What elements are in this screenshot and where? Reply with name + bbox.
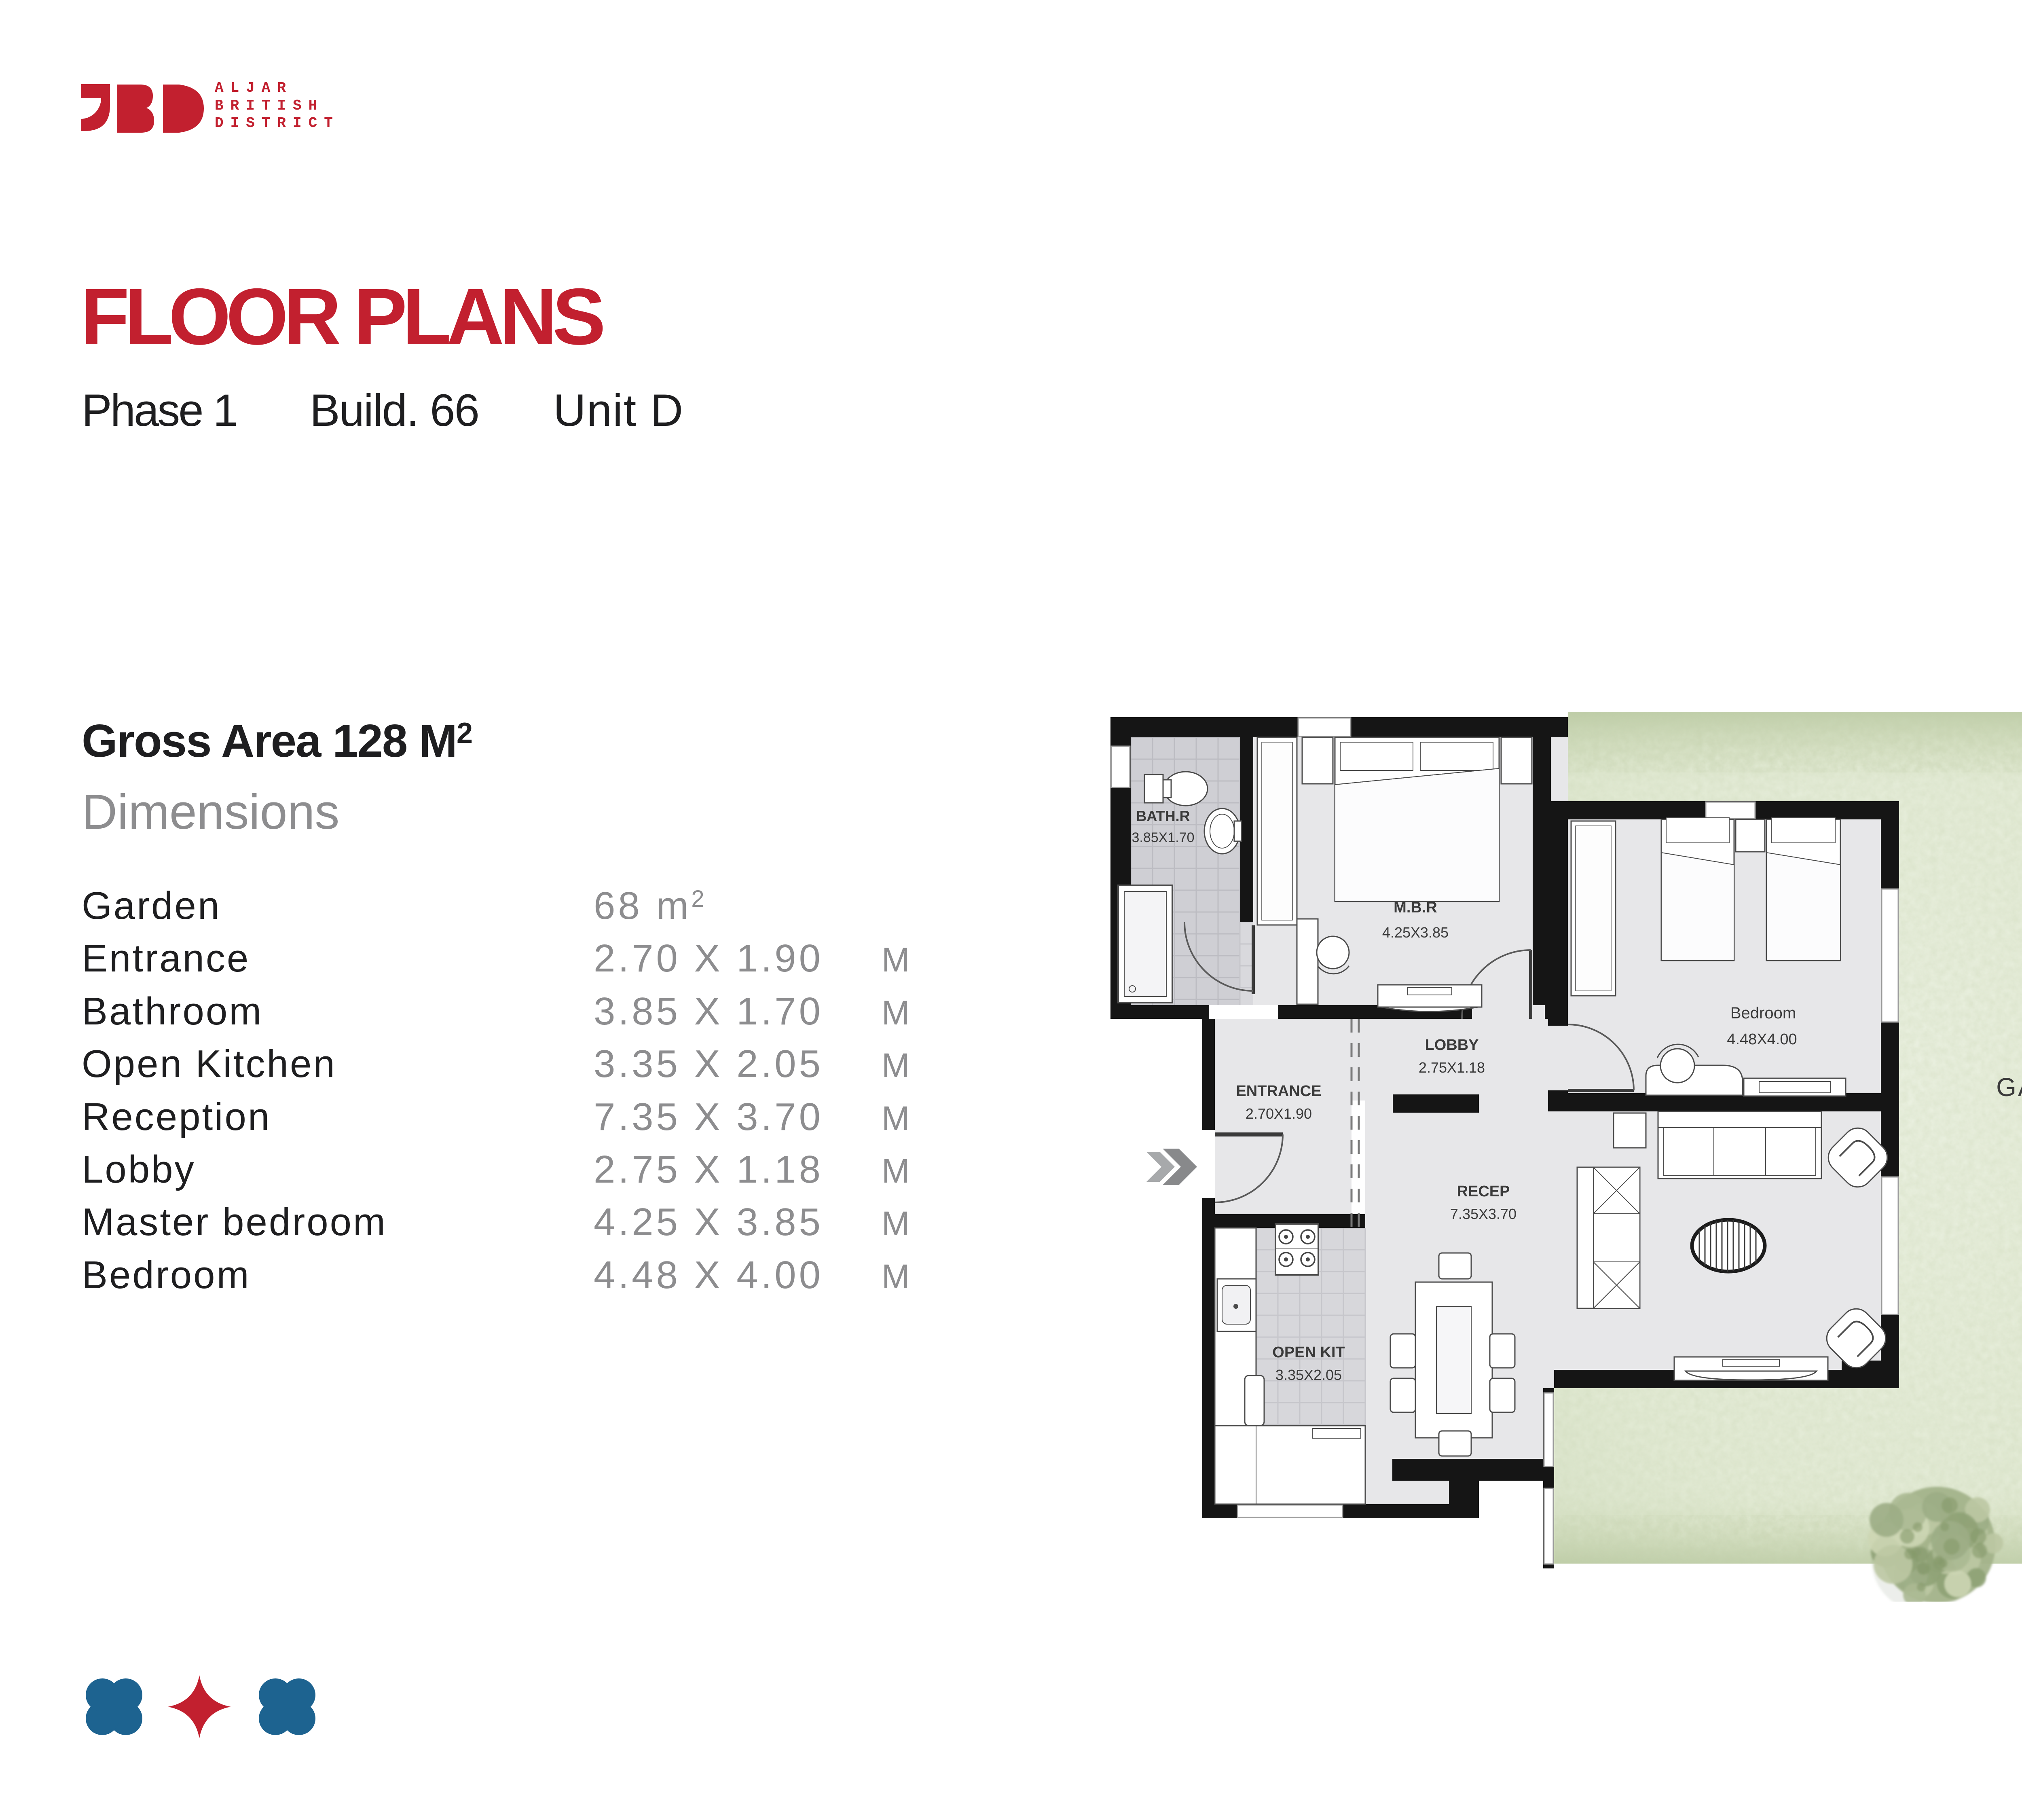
svg-text:BATH.R: BATH.R [1136, 808, 1190, 824]
svg-text:3.35X2.05: 3.35X2.05 [1275, 1367, 1342, 1383]
svg-text:4.48X4.00: 4.48X4.00 [1727, 1031, 1797, 1048]
svg-text:LOBBY: LOBBY [1425, 1037, 1479, 1054]
svg-text:GARDEN: GARDEN [1996, 1073, 2022, 1102]
svg-text:2.75X1.18: 2.75X1.18 [1419, 1059, 1485, 1076]
svg-text:Bedroom: Bedroom [1730, 1004, 1796, 1022]
svg-text:OPEN KIT: OPEN KIT [1272, 1344, 1345, 1361]
svg-text:M.B.R: M.B.R [1394, 899, 1437, 916]
svg-text:4.25X3.85: 4.25X3.85 [1382, 924, 1449, 941]
svg-text:ENTRANCE: ENTRANCE [1236, 1083, 1321, 1100]
svg-text:2.70X1.90: 2.70X1.90 [1246, 1105, 1312, 1122]
svg-text:7.35X3.70: 7.35X3.70 [1450, 1206, 1516, 1222]
svg-text:RECEP: RECEP [1457, 1183, 1510, 1200]
svg-text:3.85X1.70: 3.85X1.70 [1132, 830, 1194, 845]
